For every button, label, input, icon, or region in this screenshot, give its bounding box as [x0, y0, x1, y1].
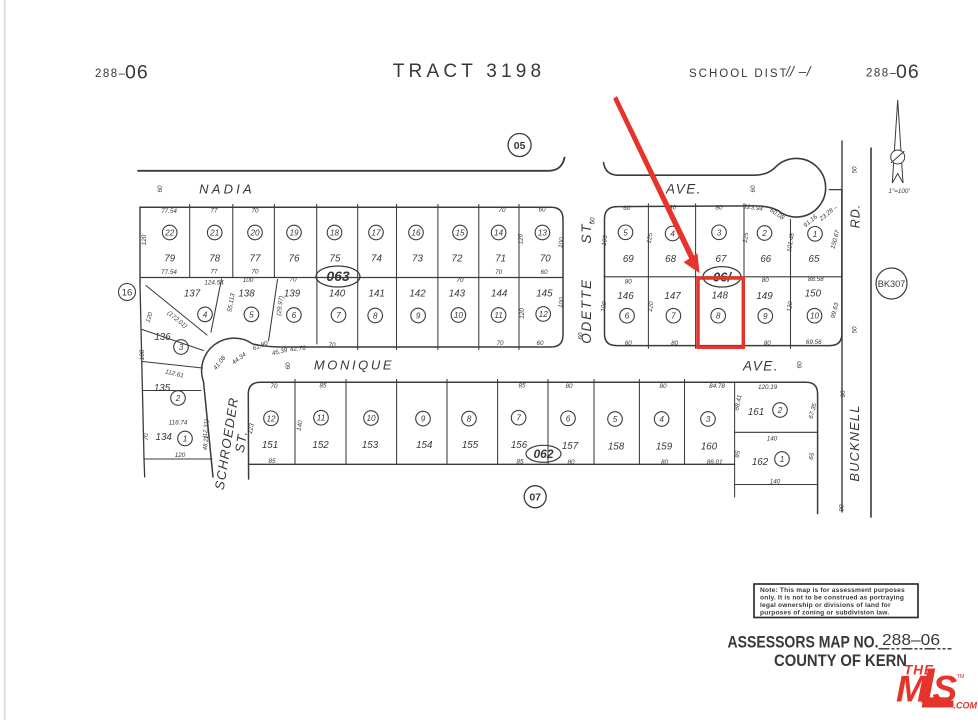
svg-text:70: 70 [328, 342, 336, 349]
svg-text:Note: This map is for assessme: Note: This map is for assessment purpose… [760, 587, 905, 594]
svg-text:41.08: 41.08 [212, 354, 228, 371]
svg-text:5: 5 [613, 415, 618, 424]
svg-text:77: 77 [210, 269, 218, 276]
svg-text:76: 76 [289, 254, 300, 265]
svg-text:153: 153 [362, 440, 379, 451]
svg-text:77: 77 [210, 207, 218, 214]
svg-text:99.63: 99.63 [830, 302, 841, 320]
svg-text:12: 12 [539, 310, 549, 319]
svg-text:60: 60 [285, 362, 292, 370]
svg-text:48.21: 48.21 [203, 435, 210, 450]
svg-text:162: 162 [752, 457, 769, 468]
svg-text:7: 7 [336, 311, 341, 320]
svg-text:45.39: 45.39 [271, 347, 288, 358]
svg-text:70: 70 [251, 269, 259, 276]
svg-text:3: 3 [717, 228, 722, 237]
svg-text:1″=100′: 1″=100′ [888, 188, 910, 195]
svg-text:148: 148 [712, 291, 729, 302]
svg-text:120: 120 [145, 311, 155, 324]
svg-text:SCHOOL DIST.: SCHOOL DIST. [689, 68, 792, 80]
svg-text:60: 60 [623, 205, 631, 212]
svg-text:69.56: 69.56 [806, 339, 822, 346]
svg-text:136: 136 [154, 332, 171, 343]
svg-text:3: 3 [706, 415, 711, 424]
svg-text:85: 85 [516, 458, 524, 465]
svg-text:6: 6 [625, 312, 630, 321]
svg-text:05: 05 [514, 140, 526, 152]
svg-text:7: 7 [516, 414, 521, 423]
svg-text:155: 155 [462, 440, 479, 451]
svg-text:6: 6 [566, 414, 571, 423]
svg-text:70: 70 [270, 383, 278, 390]
svg-text:123.94: 123.94 [743, 203, 764, 213]
svg-text:77: 77 [250, 254, 261, 265]
svg-text:84.78: 84.78 [709, 383, 725, 390]
svg-text:140: 140 [329, 289, 346, 300]
svg-text:19: 19 [289, 228, 299, 237]
svg-text:120: 120 [141, 234, 148, 245]
svg-text:10: 10 [810, 312, 820, 321]
svg-text:5: 5 [623, 228, 628, 237]
svg-text:70: 70 [143, 433, 150, 441]
svg-text:80: 80 [715, 204, 723, 211]
svg-text:COUNTY OF KERN: COUNTY OF KERN [774, 651, 907, 670]
svg-text:80: 80 [762, 277, 770, 284]
svg-text:120: 120 [518, 233, 525, 244]
svg-text:22: 22 [164, 228, 175, 237]
svg-text:60: 60 [578, 332, 585, 340]
svg-text:14: 14 [494, 228, 504, 237]
svg-text:1: 1 [780, 455, 785, 464]
svg-text:60: 60 [590, 217, 597, 225]
svg-text:105: 105 [601, 234, 610, 246]
svg-text:150.67: 150.67 [830, 229, 842, 250]
svg-text:(29.97): (29.97) [276, 295, 286, 316]
svg-text:123: 123 [247, 422, 256, 434]
svg-text:147: 147 [664, 291, 681, 302]
svg-text:120: 120 [647, 300, 656, 312]
svg-text:70: 70 [540, 254, 551, 265]
svg-text:4: 4 [659, 415, 664, 424]
svg-text:17: 17 [371, 228, 381, 237]
svg-text:AVE.: AVE. [665, 182, 702, 197]
svg-text:1: 1 [813, 230, 818, 239]
svg-text:21: 21 [209, 228, 219, 237]
svg-text:4: 4 [203, 310, 208, 319]
svg-text:10: 10 [454, 311, 464, 320]
svg-text:143: 143 [449, 289, 466, 300]
svg-text:90: 90 [840, 390, 847, 398]
svg-text:TM: TM [957, 674, 965, 680]
svg-text:(172.01): (172.01) [166, 310, 189, 330]
svg-text:100: 100 [139, 349, 146, 360]
svg-text:55.113: 55.113 [226, 292, 236, 312]
svg-text:8: 8 [467, 415, 472, 424]
svg-text:50: 50 [852, 326, 859, 334]
svg-text:78: 78 [209, 254, 220, 265]
svg-text:70: 70 [289, 277, 297, 284]
svg-text:9: 9 [416, 311, 421, 320]
svg-text:1: 1 [183, 434, 188, 443]
svg-text:15: 15 [455, 228, 465, 237]
svg-text:4: 4 [670, 229, 675, 238]
svg-text:135: 135 [154, 383, 171, 394]
svg-text:ASSESSORS MAP NO.: ASSESSORS MAP NO. [728, 633, 879, 652]
svg-text:70: 70 [456, 277, 464, 284]
svg-text:85: 85 [268, 458, 276, 465]
svg-text:16: 16 [411, 228, 421, 237]
svg-text:140: 140 [767, 436, 778, 443]
svg-text:13: 13 [538, 228, 548, 237]
svg-text:80: 80 [567, 459, 575, 466]
svg-text:MONIQUE: MONIQUE [314, 358, 394, 373]
svg-text:60: 60 [625, 340, 633, 347]
svg-text:7: 7 [671, 312, 676, 321]
svg-text:80: 80 [565, 383, 573, 390]
svg-text:75: 75 [330, 254, 341, 265]
svg-text:100: 100 [557, 296, 566, 308]
svg-text:NADIA: NADIA [199, 182, 255, 197]
svg-text:142: 142 [409, 289, 426, 300]
svg-text:150: 150 [805, 289, 822, 300]
svg-text:062: 062 [533, 447, 553, 461]
svg-text:145: 145 [536, 289, 553, 300]
svg-text:72: 72 [452, 254, 463, 265]
svg-text:134: 134 [156, 432, 173, 443]
svg-text:61.90: 61.90 [252, 340, 270, 353]
svg-text:18: 18 [330, 228, 340, 237]
svg-text:9: 9 [421, 415, 426, 424]
svg-text:120.19: 120.19 [758, 384, 778, 391]
svg-text:288–: 288– [866, 68, 898, 80]
svg-text:65: 65 [809, 254, 820, 265]
svg-text:100: 100 [243, 277, 254, 284]
svg-text:100: 100 [600, 300, 609, 312]
svg-text:063: 063 [326, 268, 350, 284]
svg-text:112.61: 112.61 [164, 368, 184, 379]
svg-text:16: 16 [122, 288, 133, 299]
svg-text:60: 60 [538, 207, 546, 214]
svg-text:80: 80 [659, 383, 667, 390]
svg-text:06: 06 [896, 61, 920, 83]
svg-text:AVE.: AVE. [742, 359, 779, 374]
svg-text:07: 07 [529, 492, 541, 504]
svg-text:BK307: BK307 [878, 279, 906, 289]
svg-text:141: 141 [369, 289, 385, 300]
svg-text:144: 144 [491, 289, 508, 300]
svg-text:116.74: 116.74 [169, 420, 188, 427]
svg-text:125: 125 [742, 231, 751, 243]
svg-text:85: 85 [734, 450, 742, 459]
svg-text:5: 5 [249, 310, 254, 319]
svg-text:77.54: 77.54 [161, 208, 177, 215]
svg-text:67: 67 [716, 254, 727, 265]
svg-text:158: 158 [608, 442, 625, 453]
svg-text:85: 85 [319, 383, 327, 390]
svg-text:// –/: // –/ [785, 64, 812, 79]
svg-text:120: 120 [175, 452, 186, 459]
svg-text:154: 154 [416, 440, 433, 451]
svg-text:159: 159 [656, 442, 673, 453]
svg-text:137: 137 [184, 289, 201, 300]
svg-text:157: 157 [562, 441, 579, 452]
svg-text:79: 79 [164, 254, 175, 265]
svg-text:288–: 288– [95, 68, 127, 80]
svg-text:140: 140 [770, 479, 781, 486]
svg-text:74: 74 [371, 254, 382, 265]
svg-text:60.08: 60.08 [768, 207, 785, 222]
svg-text:9: 9 [763, 312, 768, 321]
svg-text:8: 8 [716, 312, 721, 321]
svg-text:60: 60 [157, 185, 164, 193]
svg-text:77.54: 77.54 [161, 269, 177, 276]
svg-text:288–06: 288–06 [882, 632, 940, 649]
svg-text:11: 11 [494, 311, 503, 320]
svg-text:BUCKNELL: BUCKNELL [847, 404, 862, 481]
svg-text:161: 161 [748, 407, 764, 418]
svg-text:101.48: 101.48 [786, 232, 796, 253]
svg-text:90: 90 [839, 504, 846, 512]
svg-text:70: 70 [251, 207, 259, 214]
svg-text:2: 2 [175, 394, 181, 403]
svg-text:8: 8 [373, 311, 378, 320]
svg-text:60: 60 [536, 340, 544, 347]
svg-text:70: 70 [498, 207, 506, 214]
svg-text:legal ownership or divisions o: legal ownership or divisions of land for [760, 602, 891, 609]
svg-text:60: 60 [540, 269, 548, 276]
svg-text:120: 120 [786, 300, 795, 312]
svg-text:100: 100 [557, 236, 566, 248]
svg-text:151: 151 [262, 440, 278, 451]
svg-text:66: 66 [760, 254, 771, 265]
svg-text:6: 6 [292, 311, 297, 320]
svg-text:44.34: 44.34 [231, 351, 248, 366]
svg-text:TRACT 3198: TRACT 3198 [393, 61, 546, 82]
svg-text:purposes of zoning or subdivis: purposes of zoning or subdivision law. [760, 610, 889, 617]
svg-text:60: 60 [797, 361, 804, 369]
svg-text:69: 69 [623, 254, 634, 265]
svg-text:2: 2 [761, 229, 767, 238]
svg-text:80: 80 [764, 340, 772, 347]
svg-text:3: 3 [179, 343, 184, 352]
svg-text:70: 70 [495, 269, 503, 276]
svg-text:06: 06 [125, 62, 149, 84]
svg-text:42.76: 42.76 [290, 345, 307, 353]
svg-text:146: 146 [617, 291, 634, 302]
svg-text:70: 70 [496, 340, 504, 347]
svg-text:20: 20 [249, 228, 260, 237]
svg-text:124.54: 124.54 [204, 280, 224, 287]
svg-text:only. It is not to be construe: only. It is not to be construed as portr… [760, 595, 904, 602]
svg-text:152: 152 [312, 440, 329, 451]
svg-text:138: 138 [238, 289, 255, 300]
svg-text:80: 80 [625, 279, 633, 286]
svg-text:80: 80 [661, 459, 669, 466]
svg-text:68: 68 [665, 254, 676, 265]
svg-text:2: 2 [777, 406, 783, 415]
svg-text:156: 156 [511, 440, 528, 451]
svg-text:85: 85 [518, 383, 526, 390]
svg-text:88.58: 88.58 [808, 276, 824, 283]
svg-text:50: 50 [852, 166, 859, 174]
svg-text:120: 120 [519, 308, 526, 319]
svg-text:23.28→: 23.28→ [818, 203, 840, 223]
svg-text:86.01: 86.01 [707, 459, 723, 466]
svg-text:11: 11 [317, 414, 326, 423]
svg-text:160: 160 [701, 442, 718, 453]
svg-text:12: 12 [266, 414, 276, 423]
svg-text:RD.: RD. [849, 204, 863, 229]
svg-text:73: 73 [412, 254, 423, 265]
svg-text:149: 149 [756, 291, 773, 302]
svg-text:65: 65 [808, 452, 816, 461]
svg-text:71: 71 [495, 254, 506, 265]
svg-text:.COM: .COM [954, 701, 978, 711]
svg-text:140: 140 [296, 419, 305, 431]
svg-text:139: 139 [284, 289, 301, 300]
svg-text:10: 10 [366, 414, 376, 423]
svg-text:80: 80 [671, 340, 679, 347]
svg-text:125: 125 [646, 232, 655, 244]
svg-text:60: 60 [750, 185, 757, 193]
